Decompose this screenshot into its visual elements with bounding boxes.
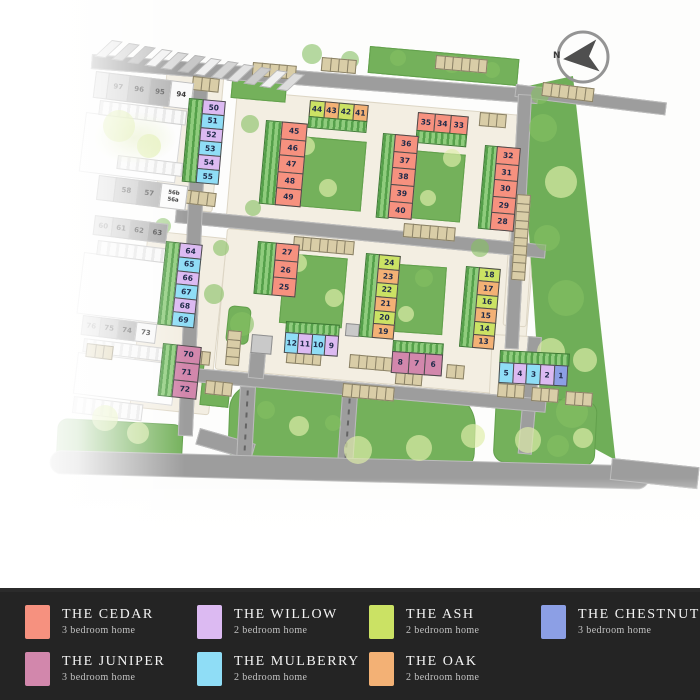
plot-number: 26 — [280, 266, 291, 274]
existing-house-label: 73 — [140, 328, 151, 337]
legend-house-type-desc: 2 bedroom home — [234, 672, 360, 683]
plot-number: 43 — [326, 106, 337, 114]
legend-house-type-desc: 3 bedroom home — [62, 672, 165, 683]
plot-number: 31 — [501, 168, 512, 176]
tree — [461, 424, 485, 448]
existing-house-label: 97 — [113, 83, 124, 92]
plot-number: 41 — [355, 109, 366, 117]
tree — [92, 405, 118, 431]
parking-bay — [477, 59, 488, 74]
legend-item: THE MULBERRY2 bedroom home — [197, 652, 369, 686]
plot-number: 66 — [182, 274, 193, 283]
tree — [325, 289, 343, 307]
siteplan: N 97969594585756b56a60616263767574735051… — [0, 0, 700, 588]
legend-swatch — [541, 605, 566, 639]
plot-number: 19 — [378, 327, 389, 335]
existing-house-label: 57 — [144, 189, 155, 198]
plot-number: 11 — [299, 340, 310, 348]
legend-house-type-name: THE WILLOW — [234, 607, 338, 622]
legend-house-type-name: THE JUNIPER — [62, 654, 165, 669]
north-arrow-icon — [552, 26, 614, 88]
parking-bay-row — [446, 364, 465, 380]
tree — [302, 44, 322, 64]
tree — [213, 240, 229, 256]
plot-number: 44 — [311, 105, 322, 113]
plot-run: 1211109 — [284, 332, 340, 357]
legend: THE CEDAR3 bedroom homeTHE WILLOW2 bedro… — [0, 588, 700, 700]
plot-number: 14 — [479, 324, 490, 332]
plot-number: 22 — [381, 286, 392, 294]
legend-swatch — [369, 605, 394, 639]
plot-number: 25 — [279, 283, 290, 291]
plot-number: 37 — [399, 156, 410, 164]
plot-number: 40 — [395, 206, 406, 214]
plot-28[interactable]: 28 — [490, 212, 515, 232]
road-dashed-centerline — [243, 390, 249, 462]
tree — [545, 166, 577, 198]
plot-run: 272625 — [271, 243, 299, 297]
plot-number: 68 — [179, 302, 190, 311]
plot-25[interactable]: 25 — [271, 277, 296, 297]
plot-number: 17 — [483, 284, 494, 292]
plot-number: 33 — [453, 121, 464, 129]
plot-number: 50 — [208, 103, 219, 111]
plot-number: 70 — [183, 351, 194, 360]
legend-text: THE CEDAR3 bedroom home — [62, 605, 154, 636]
legend-item: THE CHESTNUT3 bedroom home — [541, 605, 700, 639]
existing-house: 73 — [134, 322, 157, 344]
plot-number: 2 — [544, 371, 550, 379]
garage — [345, 323, 360, 337]
plot-number: 49 — [283, 193, 294, 201]
north-label: N — [553, 51, 561, 61]
plot-number: 32 — [503, 152, 514, 160]
plot-number: 28 — [497, 217, 508, 225]
tree — [325, 415, 341, 431]
house-block: 1211109 — [284, 321, 340, 357]
parking-bay — [384, 387, 395, 402]
existing-house-label: 56a — [167, 196, 179, 204]
tree — [398, 306, 414, 322]
plot-number: 30 — [500, 184, 511, 192]
legend-house-type-desc: 2 bedroom home — [406, 672, 479, 683]
parking-bay-row — [205, 380, 233, 397]
north-compass: N — [552, 26, 614, 88]
house-block: 3637383940 — [376, 133, 419, 220]
parking-bay — [511, 270, 526, 280]
plot-number: 21 — [380, 300, 391, 308]
plot-40[interactable]: 40 — [388, 201, 413, 221]
plot-number: 15 — [480, 311, 491, 319]
house-block: 181716151413 — [459, 266, 501, 350]
legend-house-type-name: THE ASH — [406, 607, 479, 622]
parking-bay — [582, 392, 592, 407]
plot-number: 8 — [397, 359, 403, 367]
plot-number: 39 — [396, 190, 407, 198]
tree — [443, 149, 461, 167]
existing-house-label: 75 — [104, 324, 115, 333]
plot-number: 55 — [202, 172, 213, 180]
plot-number: 71 — [181, 368, 192, 377]
existing-house-label: 58 — [121, 186, 132, 195]
plot-72[interactable]: 72 — [171, 379, 198, 400]
plot-number: 20 — [379, 314, 390, 322]
plot-number: 34 — [437, 119, 448, 127]
plot-number: 72 — [179, 385, 190, 394]
legend-text: THE OAK2 bedroom home — [406, 652, 479, 683]
legend-house-type-name: THE CHESTNUT — [578, 607, 700, 622]
plot-number: 69 — [178, 315, 189, 324]
tree — [204, 284, 224, 304]
plot-number: 47 — [286, 160, 297, 168]
plot-number: 67 — [181, 288, 192, 297]
house-block: 505152535455 — [182, 98, 226, 185]
legend-house-type-desc: 3 bedroom home — [62, 625, 154, 636]
site-plan-page: N 97969594585756b56a60616263767574735051… — [0, 0, 700, 700]
plot-number: 51 — [207, 117, 218, 125]
house-block: 54321 — [498, 350, 569, 387]
existing-house-label: 61 — [116, 224, 127, 233]
tree — [415, 269, 433, 287]
legend-item: THE ASH2 bedroom home — [369, 605, 541, 639]
parking-bay — [344, 240, 355, 255]
legend-text: THE WILLOW2 bedroom home — [234, 605, 338, 636]
legend-row-1: THE CEDAR3 bedroom homeTHE WILLOW2 bedro… — [0, 605, 700, 639]
legend-text: THE ASH2 bedroom home — [406, 605, 479, 636]
parking-bay — [102, 345, 113, 360]
legend-row-2: THE JUNIPER3 bedroom homeTHE MULBERRY2 b… — [0, 652, 700, 686]
parking-bay — [346, 59, 357, 74]
house-block: 4546474849 — [259, 120, 308, 207]
existing-house-label: 74 — [122, 326, 133, 335]
tree — [289, 416, 309, 436]
plot-9[interactable]: 9 — [324, 335, 340, 357]
parking-bay — [225, 355, 240, 366]
parking-bay-row — [192, 76, 220, 93]
plot-number: 10 — [313, 341, 324, 349]
tree — [103, 110, 135, 142]
plot-number: 42 — [340, 107, 351, 115]
plot-number: 13 — [478, 338, 489, 346]
legend-house-type-name: THE MULBERRY — [234, 654, 360, 669]
legend-house-type-desc: 3 bedroom home — [578, 625, 700, 636]
plot-number: 45 — [289, 127, 300, 135]
parking-bay — [496, 113, 507, 128]
tree — [390, 50, 406, 66]
tree — [406, 435, 432, 461]
parking-bay-row — [479, 112, 507, 128]
legend-swatch — [197, 652, 222, 686]
parking-bay-row — [565, 391, 592, 407]
parking-bay-row — [321, 57, 357, 74]
plot-number: 6 — [430, 361, 436, 369]
plot-number: 35 — [420, 118, 431, 126]
plot-number: 52 — [206, 131, 217, 139]
plot-number: 23 — [383, 272, 394, 280]
parking-bay — [221, 382, 232, 397]
tree — [127, 422, 149, 444]
legend-text: THE CHESTNUT3 bedroom home — [578, 605, 700, 636]
tree — [515, 427, 541, 453]
house-block: 876 — [391, 340, 444, 376]
tree — [471, 239, 489, 257]
legend-swatch — [197, 605, 222, 639]
legend-house-type-name: THE CEDAR — [62, 607, 154, 622]
plot-number: 12 — [286, 339, 297, 347]
plot-number: 9 — [329, 342, 335, 350]
garage — [250, 334, 273, 355]
plot-number: 18 — [484, 271, 495, 279]
plot-number: 36 — [401, 140, 412, 148]
tree — [420, 190, 436, 206]
existing-house-label: 96 — [134, 85, 145, 94]
plot-number: 16 — [481, 298, 492, 306]
legend-house-type-name: THE OAK — [406, 654, 479, 669]
tree — [257, 401, 275, 419]
parking-bay — [548, 388, 558, 403]
legend-swatch — [25, 605, 50, 639]
tree — [529, 114, 557, 142]
plot-1[interactable]: 1 — [553, 365, 569, 387]
plot-number: 29 — [498, 201, 509, 209]
parking-bay — [206, 192, 217, 207]
legend-text: THE JUNIPER3 bedroom home — [62, 652, 165, 683]
existing-house-label: 60 — [98, 221, 109, 230]
tree — [548, 280, 584, 316]
plot-number: 4 — [517, 370, 523, 378]
plot-number: 53 — [205, 145, 216, 153]
house-block: 242322212019 — [359, 253, 401, 340]
plot-number: 65 — [184, 260, 195, 269]
plot-number: 7 — [414, 360, 420, 368]
existing-house-label: 63 — [152, 228, 163, 237]
parking-bay-row — [531, 387, 558, 403]
plot-run: 54321 — [498, 362, 569, 387]
parking-bay — [200, 351, 211, 366]
tree — [241, 115, 259, 133]
existing-house-label: 62 — [134, 226, 145, 235]
plot-run: 876 — [391, 351, 443, 376]
parking-bay-row — [497, 383, 524, 399]
legend-item: THE WILLOW2 bedroom home — [197, 605, 369, 639]
plot-69[interactable]: 69 — [171, 311, 195, 328]
tree — [137, 134, 161, 158]
legend-text: THE MULBERRY2 bedroom home — [234, 652, 360, 683]
existing-house-label: 95 — [155, 88, 166, 97]
plot-number: 46 — [287, 143, 298, 151]
plot-number: 3 — [531, 370, 537, 378]
plot-number: 27 — [282, 248, 293, 256]
existing-house-label: 76 — [86, 321, 97, 330]
plot-13[interactable]: 13 — [472, 334, 495, 350]
plot-number: 24 — [384, 258, 395, 266]
plot-49[interactable]: 49 — [275, 187, 302, 207]
existing-house-label: 94 — [176, 90, 187, 99]
parking-bay — [445, 227, 456, 242]
tree — [573, 348, 597, 372]
tree — [344, 436, 372, 464]
plot-number: 1 — [558, 372, 564, 380]
tree — [547, 435, 569, 457]
house-block: 44434241 — [308, 100, 369, 133]
house-block: 707172 — [157, 343, 201, 400]
plot-number: 64 — [185, 247, 196, 256]
plot-19[interactable]: 19 — [372, 323, 395, 340]
house-block: 353433 — [415, 112, 468, 147]
parking-bay — [583, 87, 594, 102]
plot-55[interactable]: 55 — [196, 168, 220, 185]
legend-item: THE JUNIPER3 bedroom home — [25, 652, 197, 686]
house-block: 3231302928 — [478, 145, 521, 231]
plot-number: 5 — [503, 369, 509, 377]
parking-bay — [454, 365, 465, 380]
legend-item: THE CEDAR3 bedroom home — [25, 605, 197, 639]
plot-6[interactable]: 6 — [424, 353, 443, 376]
existing-house: 56b56a — [158, 183, 188, 211]
legend-swatch — [369, 652, 394, 686]
parking-bay — [208, 78, 219, 93]
legend-swatch — [25, 652, 50, 686]
tree — [573, 428, 593, 448]
plot-number: 48 — [284, 176, 295, 184]
plot-number: 38 — [398, 173, 409, 181]
road — [248, 352, 266, 379]
plot-number: 54 — [203, 158, 214, 166]
tree — [534, 225, 560, 251]
legend-house-type-desc: 2 bedroom home — [406, 625, 479, 636]
legend-house-type-desc: 2 bedroom home — [234, 625, 338, 636]
legend-item: THE OAK2 bedroom home — [369, 652, 541, 686]
parking-bay — [514, 384, 524, 399]
tree — [319, 179, 337, 197]
house-block: 272625 — [253, 241, 299, 297]
fade-overlay-bottom — [0, 478, 700, 588]
